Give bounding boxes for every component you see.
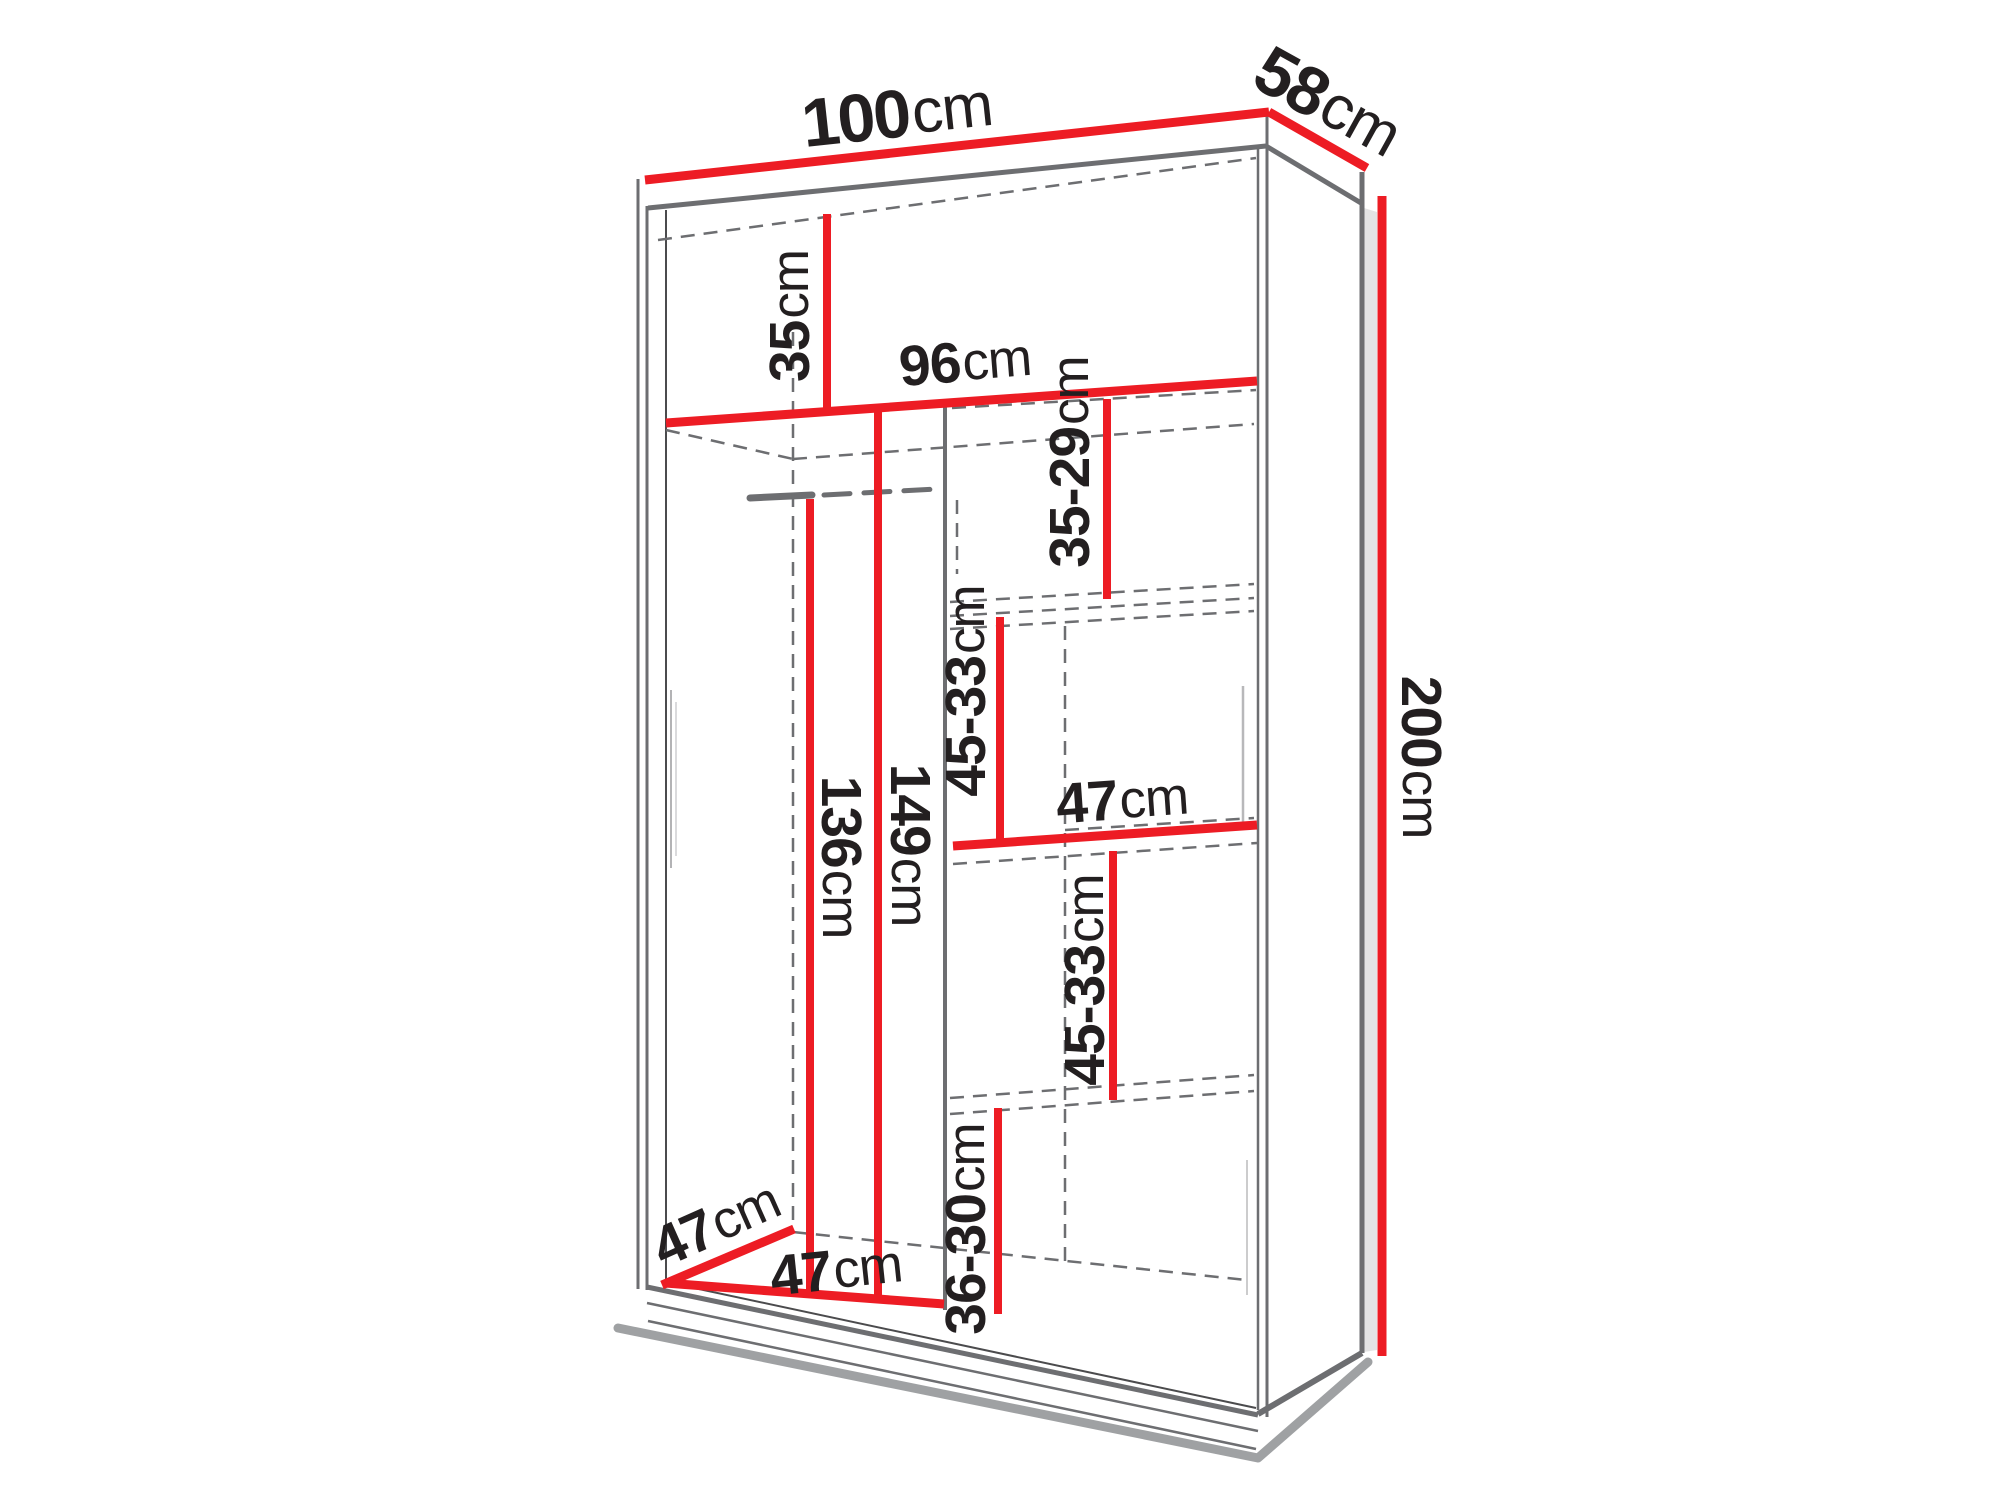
- label-overall-height: 200cm: [1389, 676, 1453, 839]
- plinth-line-lower: [648, 1321, 1256, 1449]
- label-top-compartment-height: 35cm: [758, 250, 822, 382]
- wardrobe-dimension-diagram: 100cm 58cm 200cm 35cm 96cm 35-29cm 45-33…: [0, 0, 2000, 1500]
- hanging-rail: [750, 495, 812, 498]
- shelf1-line-c: [950, 611, 1254, 629]
- label-shelf-gap-top: 35-29cm: [1038, 356, 1102, 567]
- label-hanging-space-height: 136cm: [809, 776, 873, 939]
- shelf1-line-a: [950, 584, 1254, 602]
- dimension-lines: [645, 112, 1382, 1356]
- label-shelf-gap-lower: 45-33cm: [1053, 874, 1117, 1085]
- label-shelf-gap-upper: 45-33cm: [934, 585, 998, 796]
- diagram-canvas: 100cm 58cm 200cm 35cm 96cm 35-29cm 45-33…: [0, 0, 2000, 1500]
- top-shelf-back-left: [666, 430, 793, 459]
- label-shelf-width: 47cm: [1054, 763, 1190, 836]
- top-shelf-back-right: [793, 424, 1254, 459]
- label-left-compartment-height: 149cm: [878, 764, 942, 927]
- dimension-labels: 100cm 58cm 200cm 35cm 96cm 35-29cm 45-33…: [643, 31, 1453, 1335]
- side-panel-shading: [1364, 208, 1377, 1352]
- label-shelf-gap-bottom: 36-30cm: [934, 1123, 998, 1334]
- label-interior-width: 96cm: [897, 325, 1034, 399]
